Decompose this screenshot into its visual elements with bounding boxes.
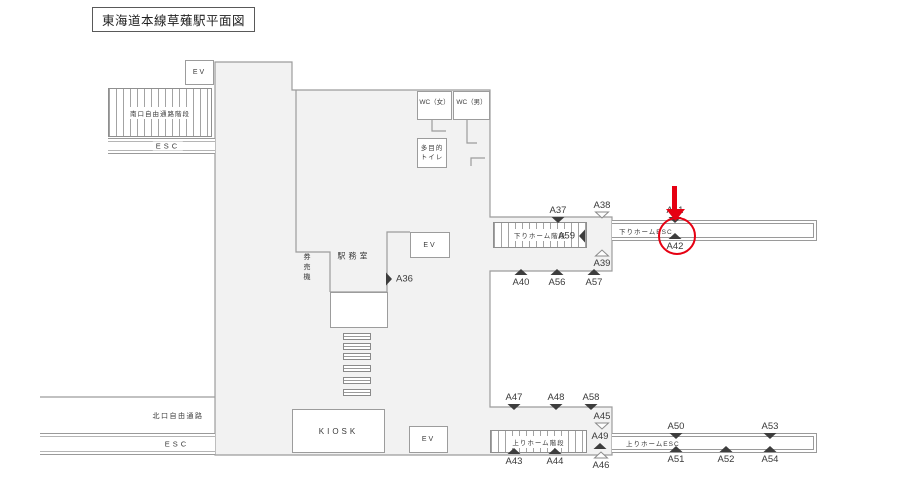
down-triangle-icon (594, 211, 610, 220)
down-triangle-icon (668, 432, 684, 441)
marker-label: A52 (718, 454, 735, 465)
marker-label: A43 (506, 456, 523, 467)
station-floor-plan: 東海道本線草薙駅平面図 EV WC（女） WC（男） 多目的 トイレ EV KI… (0, 0, 919, 491)
marker-label: A37 (550, 205, 567, 216)
marker-label: A47 (506, 392, 523, 403)
up-triangle-icon (762, 445, 778, 454)
marker-label: A38 (594, 200, 611, 211)
highlight-arrow-shaft (672, 186, 677, 210)
up-triangle-icon (718, 445, 734, 454)
marker-label: A36 (396, 274, 413, 285)
marker-label: A57 (586, 277, 603, 288)
up-triangle-icon (592, 442, 608, 451)
down-triangle-icon (550, 216, 566, 225)
highlight-circle (658, 217, 696, 255)
marker-label: A58 (583, 392, 600, 403)
marker-label: A56 (549, 277, 566, 288)
marker-label: A59 (558, 231, 575, 242)
up-triangle-icon (593, 451, 609, 460)
marker-label: A45 (594, 411, 611, 422)
marker-label: A40 (513, 277, 530, 288)
down-triangle-icon (548, 403, 564, 412)
markers-layer: A36A37A38A59A39A40A56A57A41A42A47A48A58A… (0, 0, 919, 491)
up-triangle-icon (506, 447, 522, 456)
up-triangle-icon (594, 249, 610, 258)
up-triangle-icon (586, 268, 602, 277)
down-triangle-icon (594, 422, 610, 431)
down-triangle-icon (506, 403, 522, 412)
page-title: 東海道本線草薙駅平面図 (92, 7, 255, 32)
right-triangle-icon (385, 271, 394, 287)
marker-label: A46 (593, 460, 610, 471)
marker-label: A50 (668, 421, 685, 432)
up-triangle-icon (513, 268, 529, 277)
down-triangle-icon (762, 432, 778, 441)
marker-label: A44 (547, 456, 564, 467)
up-triangle-icon (547, 447, 563, 456)
marker-label: A53 (762, 421, 779, 432)
marker-label: A51 (668, 454, 685, 465)
left-triangle-icon (578, 228, 587, 244)
marker-label: A49 (592, 431, 609, 442)
up-triangle-icon (668, 445, 684, 454)
marker-label: A48 (548, 392, 565, 403)
marker-label: A54 (762, 454, 779, 465)
up-triangle-icon (549, 268, 565, 277)
